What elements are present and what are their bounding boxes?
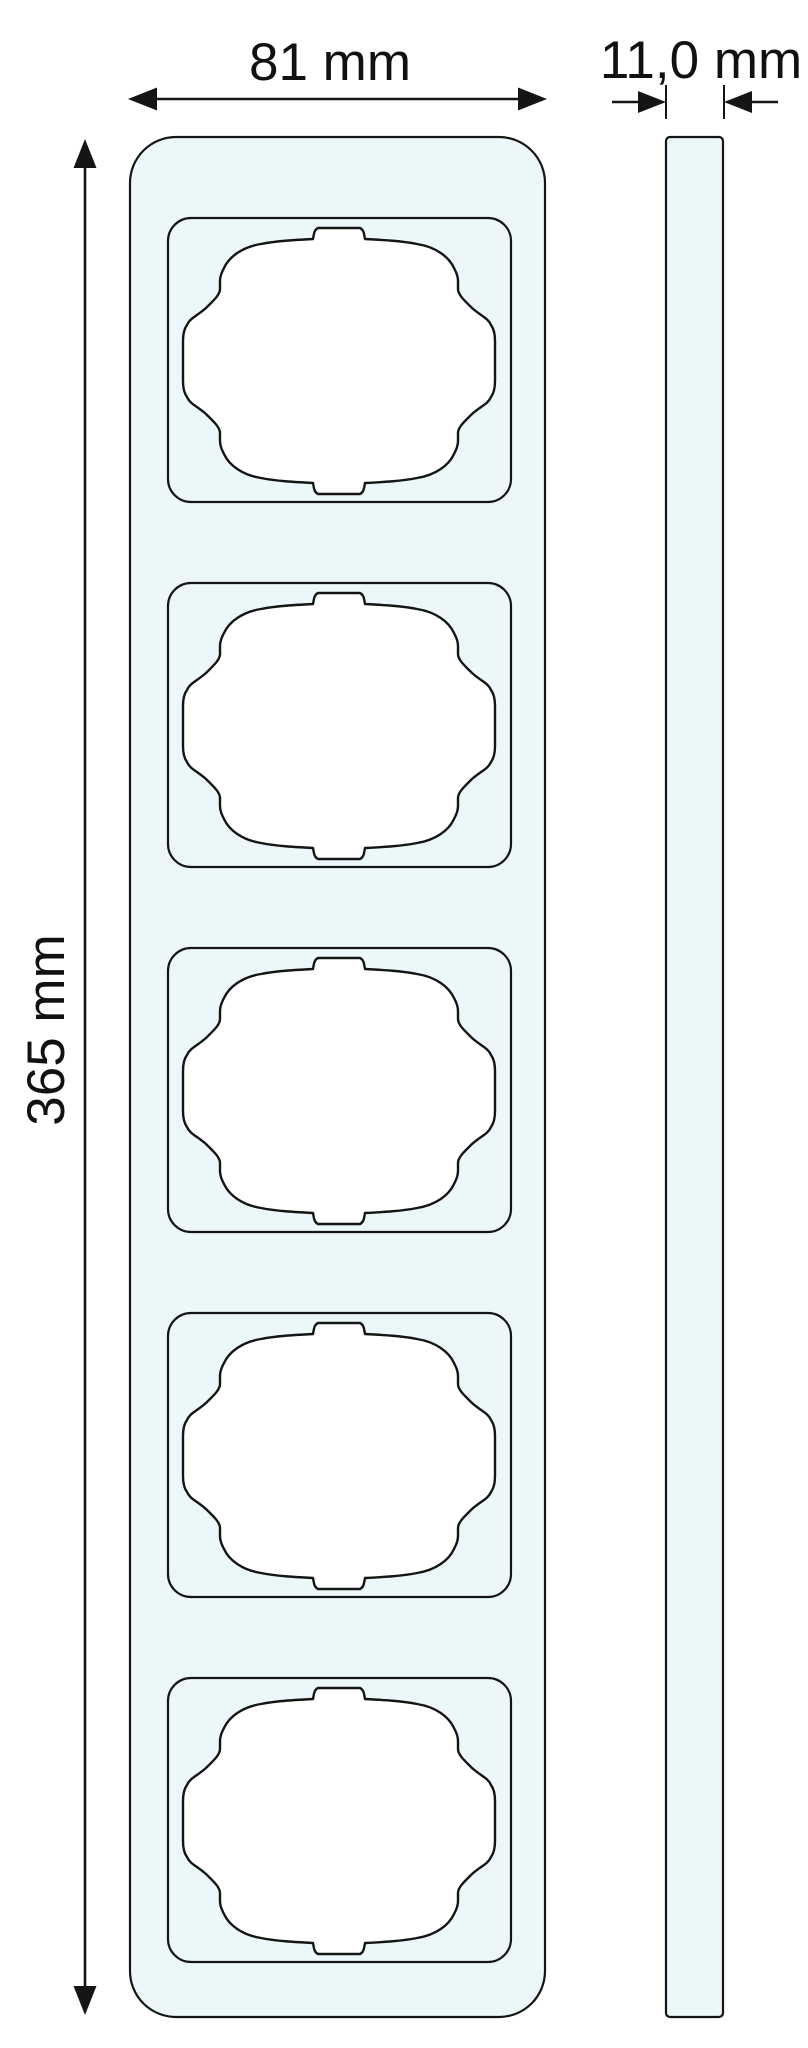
arrowhead-left-icon bbox=[128, 88, 157, 111]
gang-opening bbox=[168, 218, 511, 502]
arrowhead-up-icon bbox=[74, 139, 97, 168]
gang-openings bbox=[168, 218, 511, 1962]
height-dimension: 365 mm bbox=[17, 139, 97, 2015]
depth-dimension-label: 11,0 mm bbox=[600, 31, 802, 90]
frame-side-view bbox=[666, 137, 723, 2017]
technical-drawing: 81 mm 11,0 mm 365 mm bbox=[0, 0, 808, 2048]
arrowhead-inward-right-icon bbox=[638, 91, 666, 113]
width-dimension: 81 mm bbox=[128, 33, 547, 111]
gang-opening bbox=[168, 1313, 511, 1597]
arrowhead-inward-left-icon bbox=[724, 91, 752, 113]
drawing-canvas: 81 mm 11,0 mm 365 mm bbox=[0, 0, 808, 2048]
arrowhead-down-icon bbox=[74, 1986, 97, 2015]
arrowhead-right-icon bbox=[518, 88, 547, 111]
side-profile bbox=[666, 137, 723, 2017]
gang-opening bbox=[168, 583, 511, 867]
height-dimension-label: 365 mm bbox=[17, 934, 76, 1125]
gang-opening bbox=[168, 1678, 511, 1962]
frame-front-view bbox=[130, 137, 545, 2017]
depth-dimension: 11,0 mm bbox=[600, 31, 802, 119]
width-dimension-label: 81 mm bbox=[249, 33, 411, 92]
gang-opening bbox=[168, 948, 511, 1232]
